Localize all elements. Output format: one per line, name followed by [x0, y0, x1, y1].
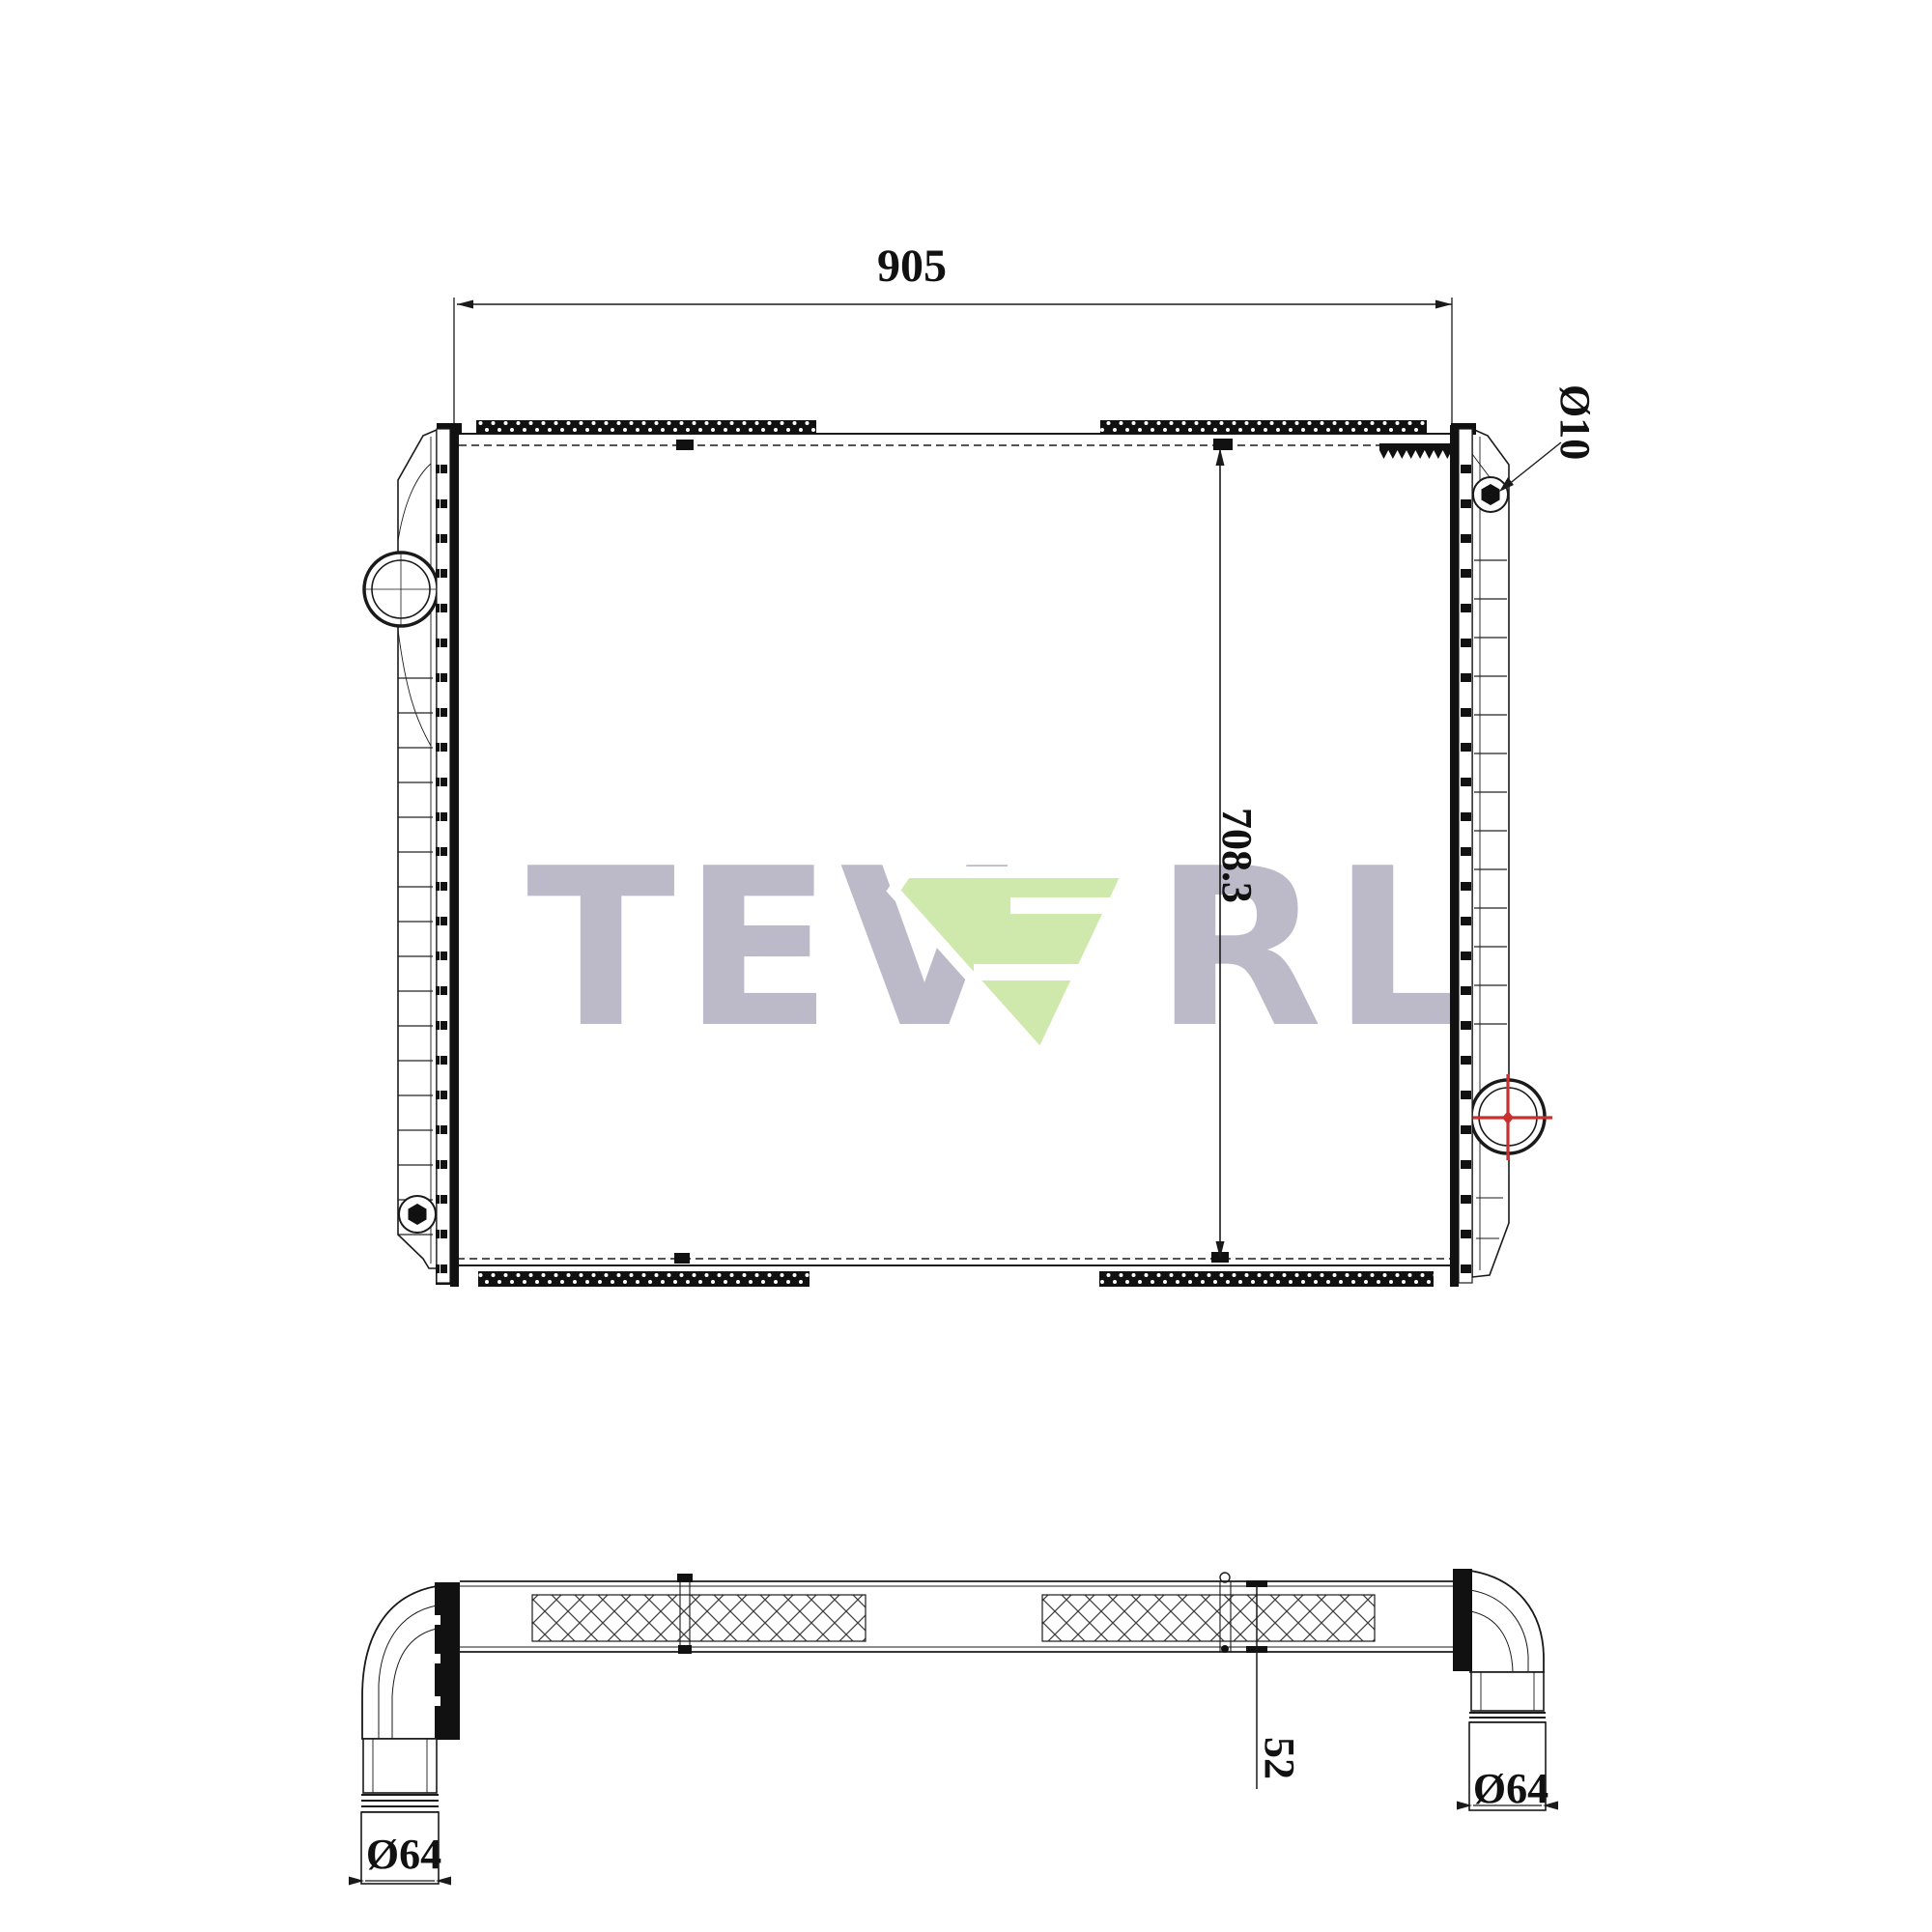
- watermark-slit: [1010, 897, 1142, 914]
- watermark-logo: TEV RL: [526, 822, 1481, 1076]
- right-side-plate: [1450, 425, 1472, 1287]
- top-fin-strip-right: [1100, 420, 1427, 434]
- band-hatch-left: [532, 1595, 866, 1641]
- right-pipe-flange: [1453, 1569, 1472, 1671]
- band-hatch-right: [1042, 1595, 1375, 1641]
- front-view: [364, 298, 1561, 1287]
- dim-label-width: 905: [854, 243, 970, 290]
- bottom-fin-strip-right: [1099, 1271, 1434, 1287]
- core-bottom-edge: [436, 1252, 1469, 1287]
- watermark-right-text: RL: [1154, 822, 1481, 1076]
- left-pipe-coupling: [361, 1795, 439, 1812]
- bottom-clip: [674, 1253, 690, 1264]
- left-inlet-port: [364, 553, 438, 626]
- drawing-canvas: TEV RL: [0, 0, 1932, 1932]
- dim-label-mount-hole: Ø10: [1553, 384, 1596, 460]
- bottom-view: [349, 1569, 1558, 1886]
- right-pipe-coupling: [1469, 1713, 1546, 1722]
- top-clip: [1213, 439, 1233, 450]
- dim-label-depth: 52: [1258, 1737, 1300, 1779]
- radiator-drawing: TEV RL: [0, 0, 1932, 1932]
- dim-label-left-pipe: Ø64: [365, 1833, 442, 1876]
- right-tank-ribs: [1474, 533, 1507, 1055]
- top-serrated-seal: [1379, 443, 1452, 459]
- left-tank-ribs: [398, 667, 433, 1258]
- dimension-905: [454, 298, 1452, 428]
- bottom-band: [460, 1573, 1453, 1654]
- watermark-slit: [974, 964, 1148, 980]
- right-mount-boss: [1473, 477, 1508, 512]
- bottom-fin-strip-left: [478, 1271, 810, 1287]
- top-fin-strip-left: [476, 420, 816, 434]
- top-clip: [676, 440, 694, 450]
- left-mount-boss: [399, 1196, 436, 1233]
- dim-label-right-pipe: Ø64: [1472, 1768, 1549, 1810]
- left-side-plate: [436, 425, 459, 1287]
- dim-label-height: 708.3: [1215, 808, 1258, 903]
- core-top-edge: [428, 420, 1452, 459]
